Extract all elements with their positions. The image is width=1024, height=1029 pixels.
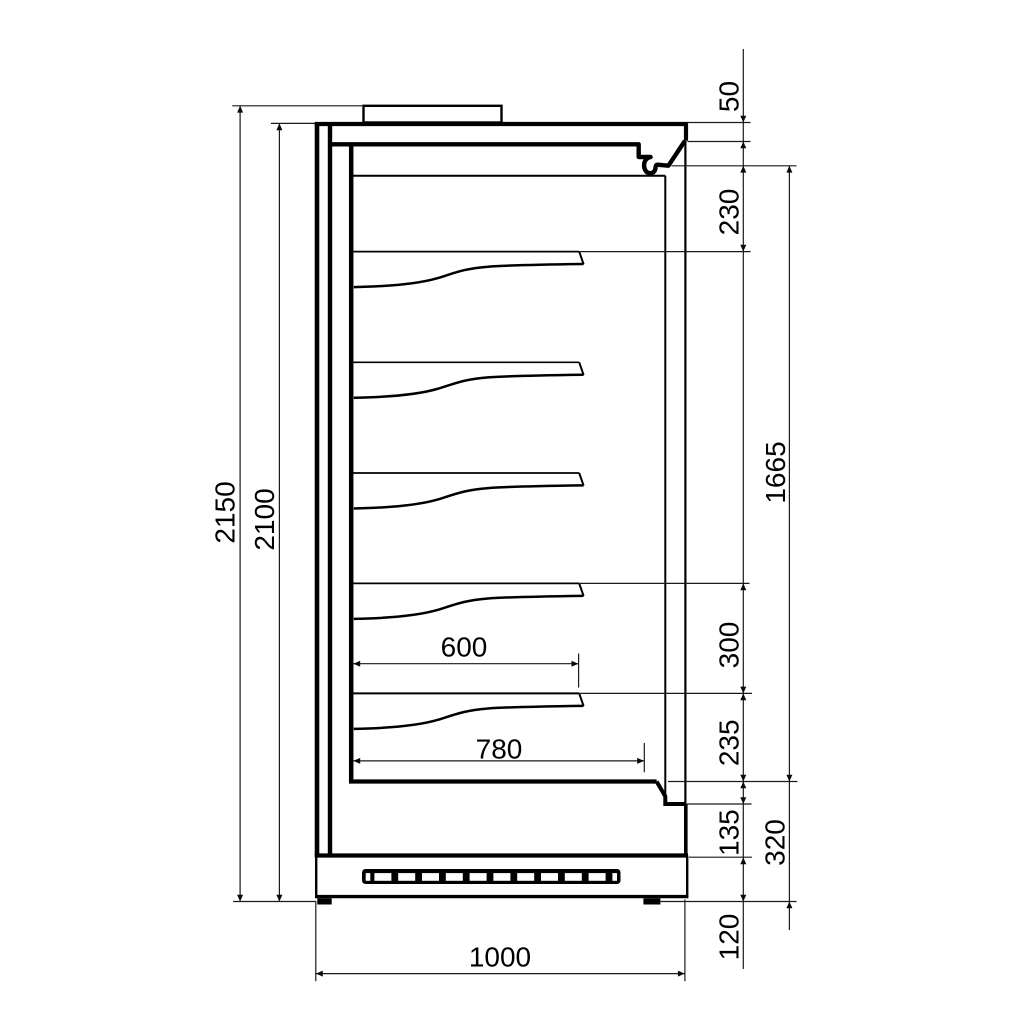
svg-text:600: 600 xyxy=(441,632,488,663)
svg-text:2150: 2150 xyxy=(210,481,241,543)
svg-text:135: 135 xyxy=(713,809,744,856)
svg-text:235: 235 xyxy=(713,719,744,766)
svg-text:230: 230 xyxy=(713,189,744,236)
svg-text:300: 300 xyxy=(713,622,744,669)
svg-text:1665: 1665 xyxy=(760,441,791,503)
svg-text:320: 320 xyxy=(759,819,790,866)
svg-text:2100: 2100 xyxy=(249,488,280,550)
svg-text:1000: 1000 xyxy=(469,942,531,973)
svg-text:120: 120 xyxy=(713,914,744,961)
svg-text:780: 780 xyxy=(476,733,523,764)
svg-text:50: 50 xyxy=(713,81,744,112)
